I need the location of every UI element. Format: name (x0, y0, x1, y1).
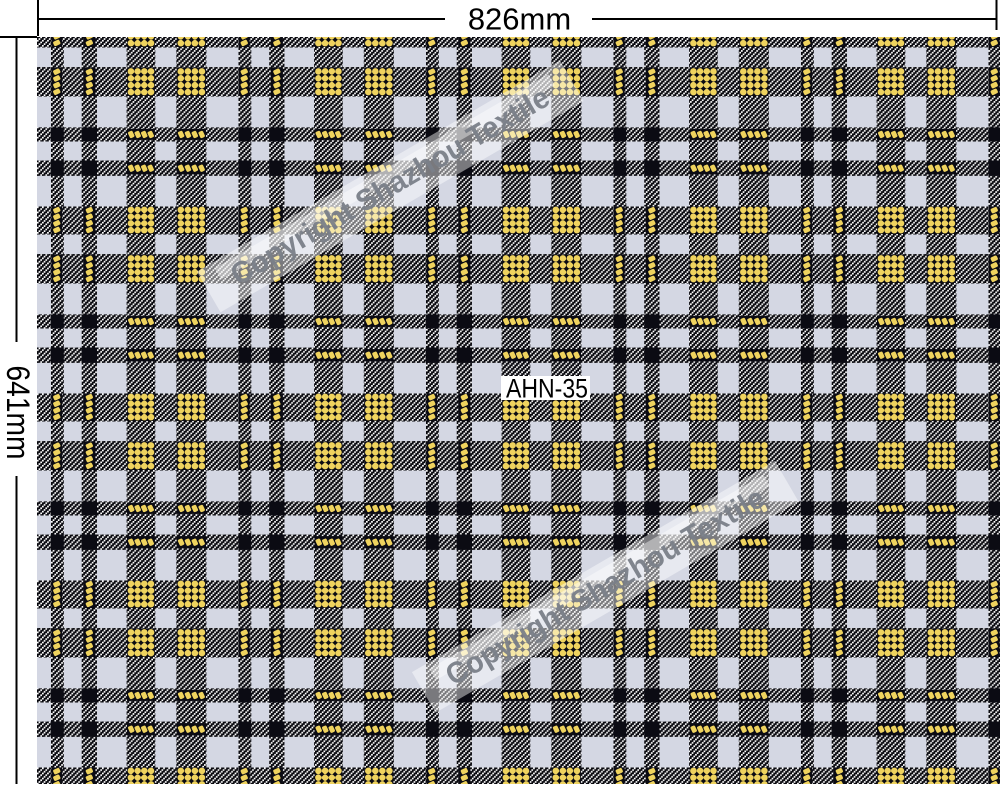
svg-text:AHN-35: AHN-35 (506, 374, 588, 404)
svg-text:641mm: 641mm (0, 366, 36, 460)
svg-text:826mm: 826mm (468, 2, 571, 37)
